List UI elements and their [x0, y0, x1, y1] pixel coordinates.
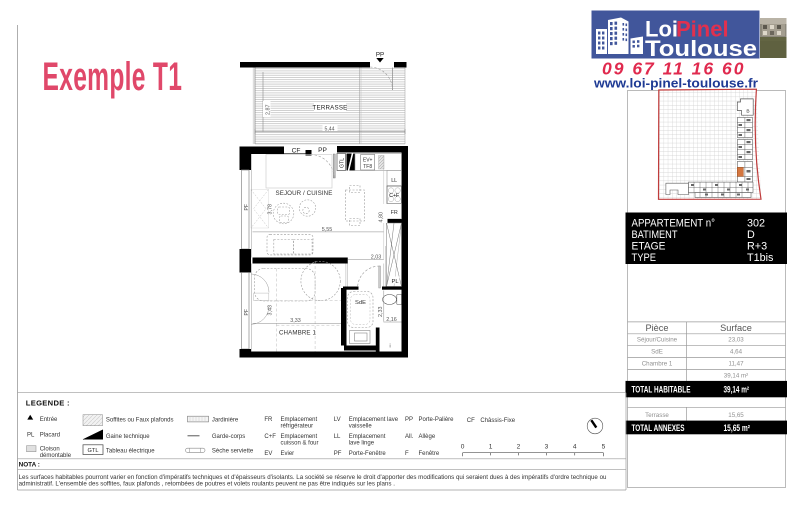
svg-text:Tableau électrique: Tableau électrique: [106, 448, 155, 454]
svg-text:Pièce: Pièce: [646, 323, 669, 333]
svg-text:TOTAL HABITABLE: TOTAL HABITABLE: [632, 384, 691, 394]
svg-text:Chambre 1: Chambre 1: [642, 361, 673, 368]
svg-text:Emplacement lave: Emplacement lave: [349, 417, 399, 423]
svg-text:F: F: [405, 451, 409, 457]
svg-text:GTL: GTL: [340, 158, 346, 168]
svg-text:Surface: Surface: [720, 323, 752, 333]
svg-text:2,03: 2,03: [371, 254, 382, 260]
svg-text:Entrée: Entrée: [40, 417, 58, 423]
svg-text:5,44: 5,44: [324, 127, 334, 133]
svg-text:Soffites ou Faux plafonds: Soffites ou Faux plafonds: [106, 418, 174, 424]
svg-text:Toulouse: Toulouse: [645, 36, 757, 61]
svg-text:CF: CF: [467, 418, 475, 424]
svg-text:39,14 m²: 39,14 m²: [724, 372, 748, 379]
svg-text:4: 4: [573, 444, 577, 451]
svg-text:Fenêtre: Fenêtre: [419, 451, 440, 457]
svg-text:Porte-Fenêtre: Porte-Fenêtre: [349, 451, 387, 457]
svg-text:3,43: 3,43: [268, 305, 274, 316]
svg-text:11,47: 11,47: [728, 361, 744, 368]
svg-text:5,55: 5,55: [322, 227, 333, 233]
svg-text:cuisson & four: cuisson & four: [281, 441, 319, 447]
svg-text:FR: FR: [391, 210, 398, 216]
svg-text:3: 3: [545, 444, 549, 451]
svg-text:0: 0: [461, 444, 465, 451]
svg-text:LL: LL: [391, 178, 397, 184]
svg-text:2: 2: [517, 444, 521, 451]
svg-text:PL: PL: [391, 279, 399, 285]
svg-text:Exemple T1: Exemple T1: [43, 55, 183, 100]
svg-text:LV: LV: [334, 417, 341, 423]
svg-text:lave linge: lave linge: [349, 441, 375, 447]
svg-text:PP: PP: [318, 147, 327, 154]
svg-text:BATIMENT: BATIMENT: [632, 229, 678, 241]
svg-text:Porte-Palière: Porte-Palière: [419, 417, 455, 423]
svg-text:D: D: [747, 229, 755, 241]
svg-text:3,78: 3,78: [267, 204, 273, 215]
svg-text:NOTA :: NOTA :: [19, 461, 40, 468]
svg-text:PL: PL: [27, 432, 35, 438]
svg-text:réfrigérateur: réfrigérateur: [281, 424, 314, 430]
svg-text:4,80: 4,80: [379, 212, 385, 223]
svg-text:Terrasse: Terrasse: [645, 412, 669, 419]
svg-text:C+F: C+F: [389, 193, 399, 199]
svg-text:Evier: Evier: [281, 451, 295, 457]
svg-text:www.loi-pinel-toulouse.fr: www.loi-pinel-toulouse.fr: [593, 76, 758, 91]
svg-text:B: B: [746, 109, 749, 115]
svg-text:Placard: Placard: [40, 432, 60, 438]
svg-text:3,33: 3,33: [290, 318, 301, 324]
svg-text:15,65: 15,65: [728, 412, 744, 419]
svg-text:Sèche serviette: Sèche serviette: [212, 448, 254, 454]
svg-text:2,33: 2,33: [378, 307, 384, 318]
svg-text:CHAMBRE 1: CHAMBRE 1: [279, 329, 316, 336]
svg-text:PP: PP: [376, 52, 384, 59]
svg-text:CF: CF: [292, 148, 301, 155]
svg-text:EV+: EV+: [363, 157, 373, 163]
svg-text:TERRASSE: TERRASSE: [313, 104, 348, 111]
svg-text:39,14 m²: 39,14 m²: [724, 384, 750, 394]
svg-text:Allège: Allège: [419, 434, 436, 440]
svg-text:T1bis: T1bis: [747, 252, 774, 264]
svg-text:i: i: [389, 344, 390, 350]
svg-text:15,65 m²: 15,65 m²: [724, 423, 751, 433]
svg-text:SEJOUR / CUISINE: SEJOUR / CUISINE: [276, 190, 333, 197]
svg-text:Cloison: Cloison: [40, 446, 60, 452]
svg-text:Emplacement: Emplacement: [281, 434, 318, 440]
svg-text:C+F: C+F: [264, 434, 276, 440]
svg-text:TYPE: TYPE: [632, 252, 657, 264]
svg-text:PF: PF: [244, 204, 250, 210]
svg-text:PP: PP: [405, 417, 413, 423]
svg-text:SdE: SdE: [355, 300, 366, 306]
svg-text:Emplacement: Emplacement: [281, 417, 318, 423]
svg-text:2,16: 2,16: [386, 317, 397, 323]
svg-text:APPARTEMENT n°: APPARTEMENT n°: [632, 217, 716, 229]
svg-text:TF8: TF8: [363, 164, 372, 170]
svg-text:démontable: démontable: [40, 453, 72, 459]
svg-text:EV: EV: [264, 451, 272, 457]
svg-text:Gaine technique: Gaine technique: [106, 434, 150, 440]
svg-text:PF: PF: [334, 451, 342, 457]
svg-text:FR: FR: [264, 417, 273, 423]
svg-text:R+3: R+3: [747, 241, 767, 253]
svg-text:LL: LL: [334, 434, 341, 440]
svg-text:1: 1: [489, 444, 493, 451]
svg-text:Jardinière: Jardinière: [212, 418, 239, 424]
svg-text:5: 5: [602, 444, 606, 451]
svg-text:LEGENDE :: LEGENDE :: [26, 399, 70, 408]
svg-text:PF: PF: [244, 309, 250, 315]
svg-text:ETAGE: ETAGE: [632, 241, 666, 253]
svg-text:All.: All.: [405, 434, 414, 440]
svg-text:23,03: 23,03: [728, 337, 744, 344]
svg-text:302: 302: [747, 217, 765, 229]
svg-text:TOTAL ANNEXES: TOTAL ANNEXES: [632, 423, 685, 433]
svg-text:Emplacement: Emplacement: [349, 434, 386, 440]
svg-text:Garde-corps: Garde-corps: [212, 434, 245, 440]
svg-text:GTL: GTL: [88, 448, 99, 454]
svg-text:vaisselle: vaisselle: [349, 424, 373, 430]
svg-text:4,64: 4,64: [730, 349, 743, 356]
svg-text:Séjour/Cuisine: Séjour/Cuisine: [637, 337, 678, 344]
svg-text:2,87: 2,87: [265, 105, 271, 116]
svg-text:SdE: SdE: [651, 349, 663, 356]
svg-text:Châssis-Fixe: Châssis-Fixe: [480, 418, 515, 424]
svg-text:administratif. L'ensemble des: administratif. L'ensemble des soffites, …: [19, 481, 396, 488]
